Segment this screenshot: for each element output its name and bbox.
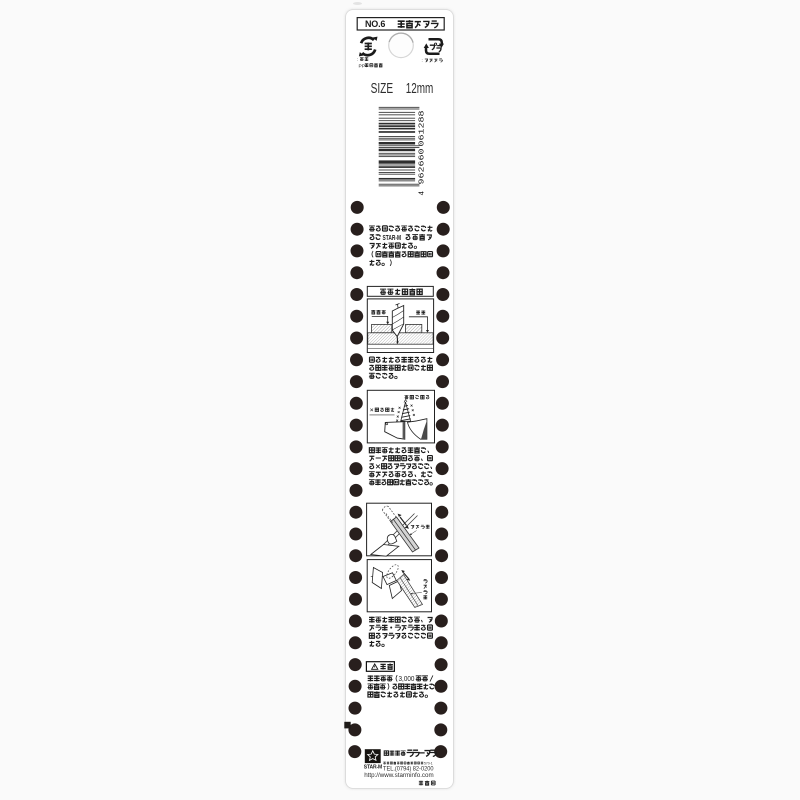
svg-text:PP: PP (359, 63, 365, 69)
svg-text:962660: 962660 (418, 148, 426, 185)
svg-text:12mm: 12mm (406, 81, 434, 97)
svg-text::: : (422, 58, 423, 63)
svg-text:http://www.starminfo.com: http://www.starminfo.com (364, 772, 434, 779)
svg-text:STAR-M: STAR-M (364, 764, 383, 770)
svg-text::: : (357, 57, 358, 62)
svg-text:061288: 061288 (418, 110, 426, 147)
svg-text:STAR-M: STAR-M (383, 233, 402, 242)
svg-text:4: 4 (418, 191, 426, 196)
svg-text:NO.6: NO.6 (365, 19, 385, 29)
svg-text:3,000: 3,000 (399, 676, 415, 683)
svg-text:SIZE: SIZE (371, 81, 394, 97)
